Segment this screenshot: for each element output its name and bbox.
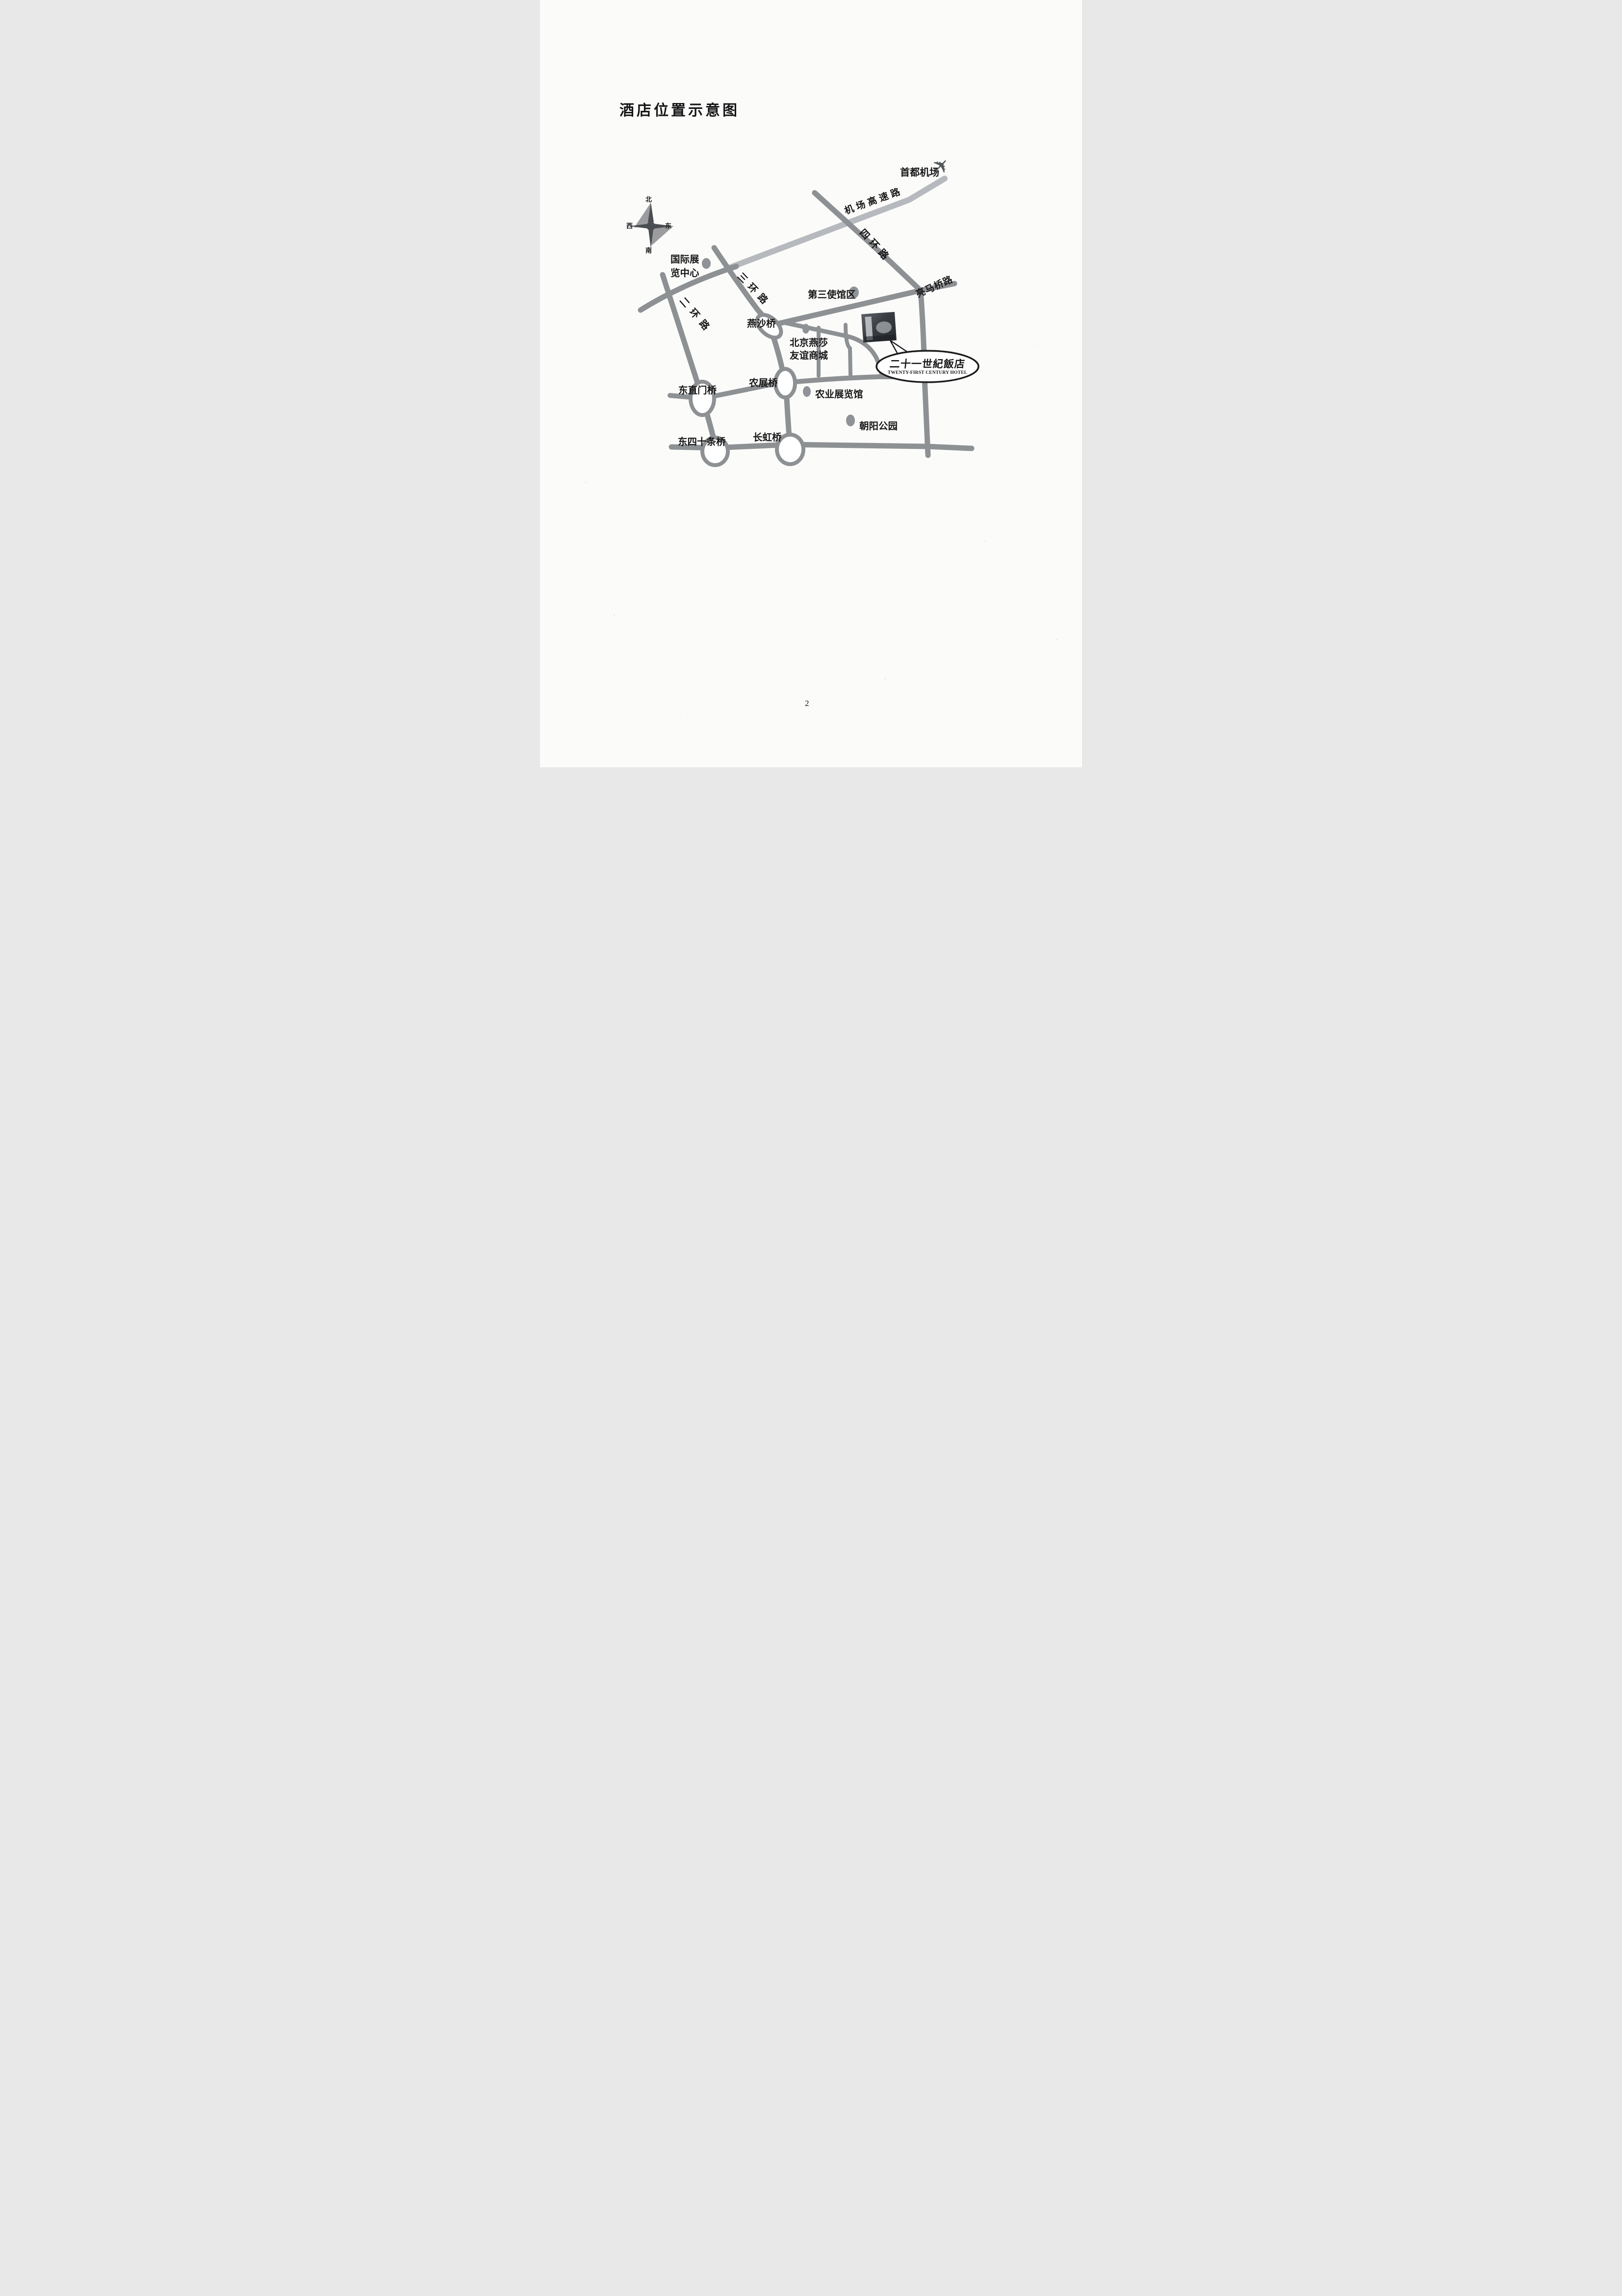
street-yansha-block-east	[846, 325, 850, 375]
yansha-bridge-label: 燕沙桥	[747, 315, 776, 330]
page-number: 2	[805, 699, 809, 708]
compass-south-label: 南	[645, 245, 652, 255]
dot-intl-exhibition	[702, 258, 711, 269]
yansha-mall-line1: 北京燕莎	[790, 337, 828, 350]
hotel-name-english: TWENTY-FIRST CENTURY HOTEL	[877, 370, 978, 375]
intl-exhibition-line2: 览中心	[670, 267, 699, 281]
dot-chaoyang-park	[846, 415, 855, 426]
dot-agriculture-hall	[803, 386, 811, 397]
scan-speck	[687, 715, 688, 716]
compass-north-label: 北	[645, 194, 652, 204]
agriculture-hall-label: 农业展览馆	[815, 386, 863, 400]
dongzhimen-bridge-label: 东直门桥	[678, 382, 717, 396]
changhong-bridge-label: 长虹桥	[753, 429, 782, 444]
hotel-photo	[861, 312, 897, 343]
page-title: 酒店位置示意图	[619, 98, 740, 120]
scan-speck	[984, 541, 985, 542]
scan-speck	[614, 614, 615, 616]
dongsishitiao-bridge-label: 东四十条桥	[678, 434, 726, 448]
scan-speck	[1034, 344, 1035, 345]
intl-exhibition-line1: 国际展	[670, 253, 699, 267]
road-airport-expressway	[726, 179, 945, 269]
document-page: 酒店位置示意图 北 南 西 东 首都机场 ✈ 机场高速路 四环路 亮马桥路 三环…	[540, 0, 1082, 767]
yansha-mall-label: 北京燕莎 友谊商城	[790, 337, 828, 363]
scan-speck	[1056, 639, 1057, 640]
scan-speck	[884, 678, 886, 679]
scan-speck	[585, 482, 586, 483]
interchange-nongzhan-bridge	[775, 369, 795, 397]
scan-speck	[746, 658, 747, 659]
intl-exhibition-label: 国际展 览中心	[670, 253, 699, 280]
embassy-district-label: 第三使馆区	[808, 287, 856, 301]
compass-west-label: 西	[626, 221, 633, 230]
hotel-name-chinese: 二十一世紀飯店	[876, 356, 978, 371]
compass-east-label: 东	[665, 221, 671, 230]
nongzhan-bridge-label: 农展桥	[749, 375, 778, 389]
yansha-mall-line2: 友谊商城	[790, 350, 828, 363]
chaoyang-park-label: 朝阳公园	[859, 418, 898, 432]
dot-yansha-mall	[802, 324, 809, 334]
